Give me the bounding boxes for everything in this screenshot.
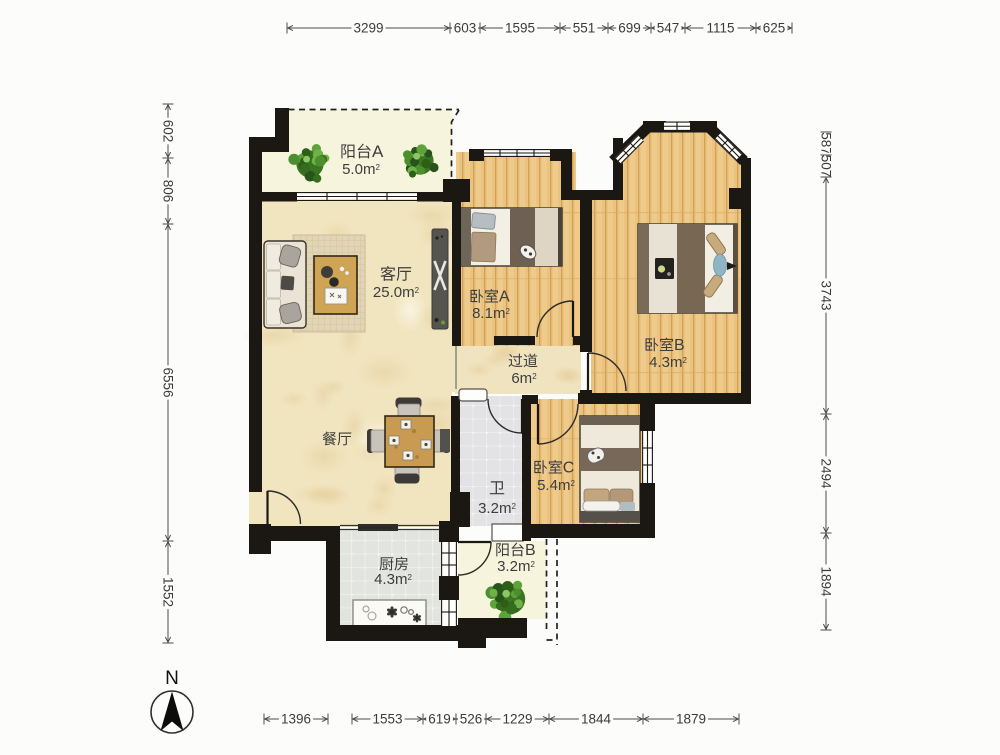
svg-text:2494: 2494 bbox=[819, 458, 834, 489]
svg-text:603: 603 bbox=[454, 21, 477, 36]
svg-text:1552: 1552 bbox=[161, 577, 176, 607]
svg-text:25.0m2: 25.0m2 bbox=[373, 284, 420, 301]
svg-text:507: 507 bbox=[819, 155, 834, 178]
svg-text:4.3m2: 4.3m2 bbox=[649, 354, 687, 371]
svg-text:602: 602 bbox=[161, 120, 176, 143]
svg-text:1115: 1115 bbox=[706, 21, 734, 36]
svg-text:3743: 3743 bbox=[819, 280, 834, 310]
svg-text:3299: 3299 bbox=[353, 21, 383, 36]
svg-text:6556: 6556 bbox=[161, 367, 176, 397]
svg-text:3.2m2: 3.2m2 bbox=[497, 558, 535, 575]
svg-text:625: 625 bbox=[763, 21, 786, 36]
svg-text:B: B bbox=[525, 542, 536, 559]
svg-text:587: 587 bbox=[819, 132, 834, 155]
svg-text:526: 526 bbox=[460, 712, 483, 727]
svg-text:8.1m2: 8.1m2 bbox=[472, 305, 510, 322]
svg-text:619: 619 bbox=[428, 712, 451, 727]
svg-text:1553: 1553 bbox=[372, 712, 402, 727]
svg-text:1396: 1396 bbox=[281, 712, 311, 727]
svg-text:1595: 1595 bbox=[505, 21, 535, 36]
svg-text:1844: 1844 bbox=[581, 712, 612, 727]
svg-text:N: N bbox=[165, 668, 179, 689]
svg-text:1879: 1879 bbox=[676, 712, 706, 727]
svg-text:699: 699 bbox=[618, 21, 641, 36]
svg-text:547: 547 bbox=[657, 21, 680, 36]
svg-text:1229: 1229 bbox=[502, 712, 532, 727]
svg-text:B: B bbox=[674, 337, 685, 354]
svg-text:5.0m2: 5.0m2 bbox=[342, 161, 380, 178]
svg-text:3.2m2: 3.2m2 bbox=[478, 500, 516, 517]
svg-text:551: 551 bbox=[573, 21, 596, 36]
svg-text:C: C bbox=[563, 459, 575, 476]
svg-text:1894: 1894 bbox=[819, 566, 834, 597]
svg-text:4.3m2: 4.3m2 bbox=[374, 571, 412, 588]
svg-text:A: A bbox=[372, 142, 384, 161]
svg-text:806: 806 bbox=[161, 180, 176, 203]
svg-text:5.4m2: 5.4m2 bbox=[537, 477, 575, 494]
svg-text:A: A bbox=[499, 288, 510, 305]
